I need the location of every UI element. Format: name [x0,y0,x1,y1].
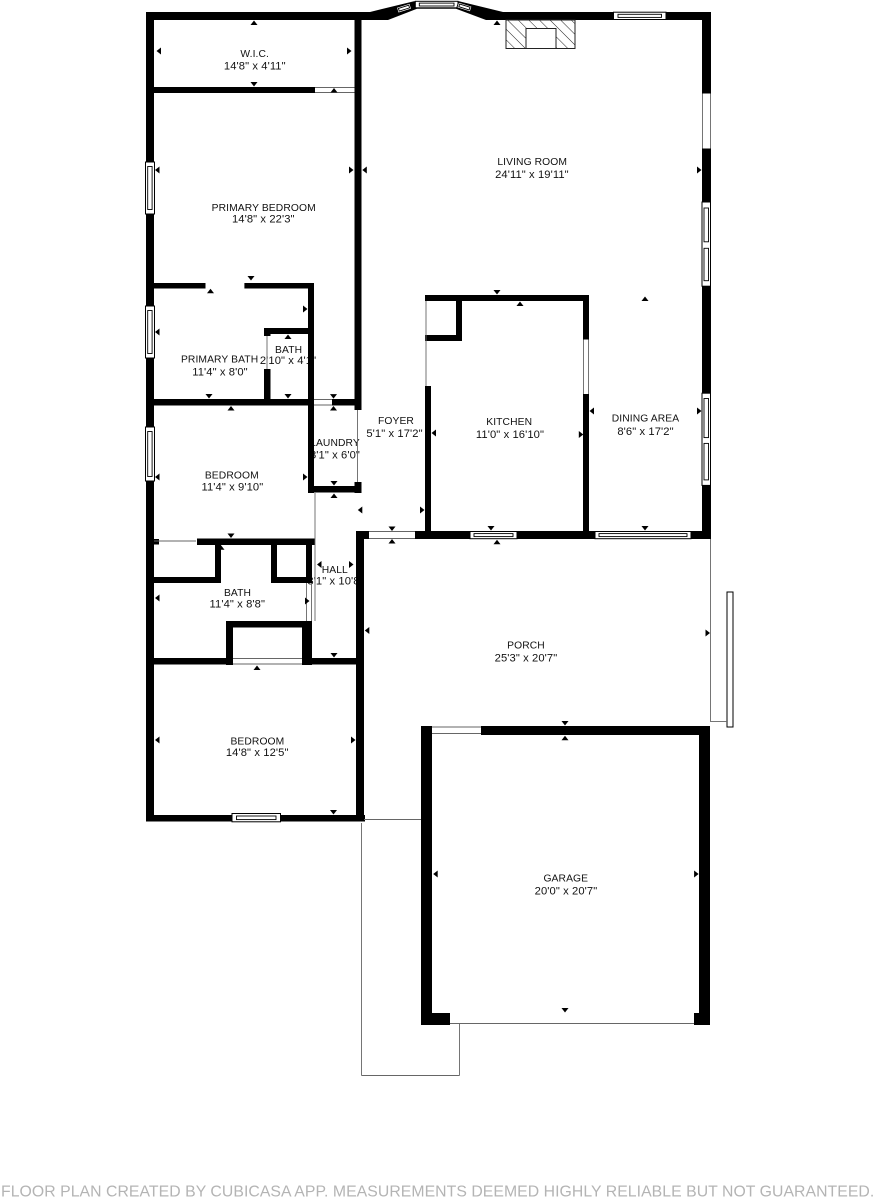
svg-text:11'4" x 9'10": 11'4" x 9'10" [201,482,263,494]
svg-text:GARAGE: GARAGE [543,873,588,884]
svg-text:PORCH: PORCH [507,640,545,651]
svg-text:PRIMARY BATH: PRIMARY BATH [181,355,258,366]
svg-text:11'4" x 8'0": 11'4" x 8'0" [192,367,248,379]
svg-text:5'1" x 17'2": 5'1" x 17'2" [366,428,422,440]
svg-text:LAUNDRY: LAUNDRY [310,438,360,449]
svg-text:24'11" x 19'11": 24'11" x 19'11" [495,169,569,181]
svg-text:11'4" x 8'8": 11'4" x 8'8" [210,599,266,611]
svg-text:3'1" x 6'0": 3'1" x 6'0" [310,450,360,462]
svg-text:2'10" x 4'1": 2'10" x 4'1" [260,355,316,367]
svg-text:20'0" x 20'7": 20'0" x 20'7" [535,886,598,898]
svg-text:FLOOR PLAN CREATED BY CUBICASA: FLOOR PLAN CREATED BY CUBICASA APP. MEAS… [1,1184,874,1200]
svg-text:BATH: BATH [224,588,251,599]
svg-text:3'1" x 10'8": 3'1" x 10'8" [307,575,363,587]
svg-text:KITCHEN: KITCHEN [486,417,532,428]
svg-text:11'0" x 16'10": 11'0" x 16'10" [476,429,544,441]
svg-text:HALL: HALL [322,565,348,576]
svg-text:LIVING ROOM: LIVING ROOM [497,157,567,168]
svg-text:W.I.C.: W.I.C. [240,49,269,60]
svg-text:14'8" x 12'5": 14'8" x 12'5" [226,747,289,759]
svg-text:FOYER: FOYER [378,416,414,427]
svg-text:BEDROOM: BEDROOM [205,471,259,482]
svg-text:25'3" x 20'7": 25'3" x 20'7" [495,652,558,664]
svg-text:14'8" x 4'11": 14'8" x 4'11" [224,61,286,73]
svg-text:14'8" x 22'3": 14'8" x 22'3" [232,213,295,225]
svg-text:8'6" x 17'2": 8'6" x 17'2" [617,426,673,438]
svg-text:BEDROOM: BEDROOM [230,737,284,748]
svg-text:DINING AREA: DINING AREA [612,413,680,424]
